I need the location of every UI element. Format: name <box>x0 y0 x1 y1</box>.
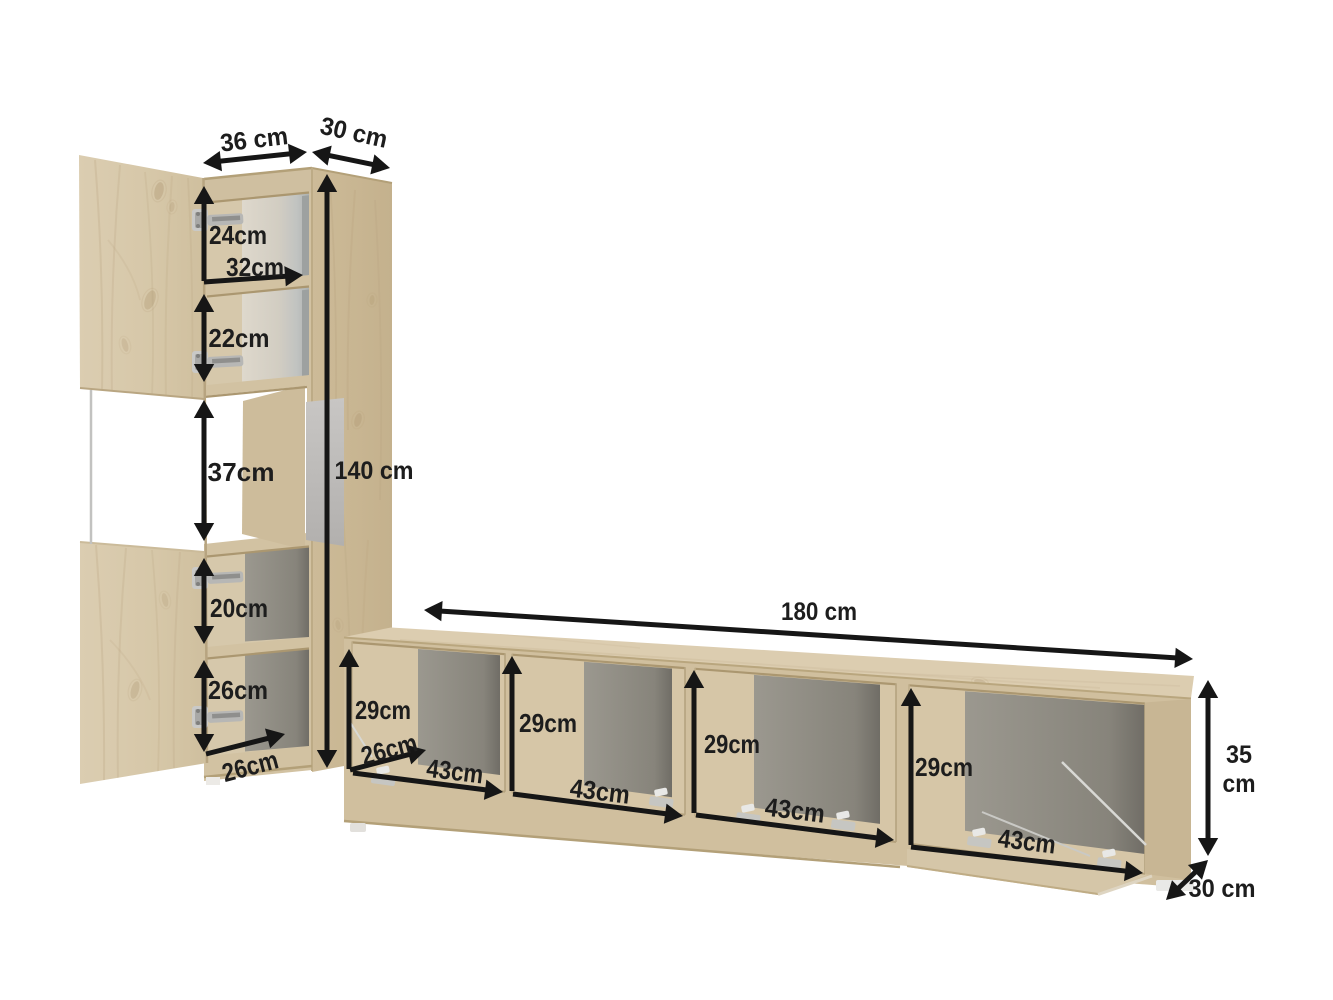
svg-text:26cm: 26cm <box>208 675 268 705</box>
svg-text:20cm: 20cm <box>210 593 268 623</box>
svg-text:24cm: 24cm <box>209 220 267 250</box>
svg-text:32cm: 32cm <box>226 252 284 282</box>
svg-text:35: 35 <box>1226 741 1252 769</box>
svg-text:cm: cm <box>1223 770 1256 798</box>
svg-text:180 cm: 180 cm <box>781 598 857 626</box>
svg-text:29cm: 29cm <box>915 752 973 782</box>
svg-text:140 cm: 140 cm <box>335 457 414 485</box>
svg-text:30 cm: 30 cm <box>1189 875 1256 903</box>
svg-text:29cm: 29cm <box>704 729 760 759</box>
svg-text:29cm: 29cm <box>519 708 577 738</box>
svg-text:37cm: 37cm <box>208 457 275 487</box>
svg-text:22cm: 22cm <box>209 323 270 353</box>
svg-text:29cm: 29cm <box>355 695 411 725</box>
